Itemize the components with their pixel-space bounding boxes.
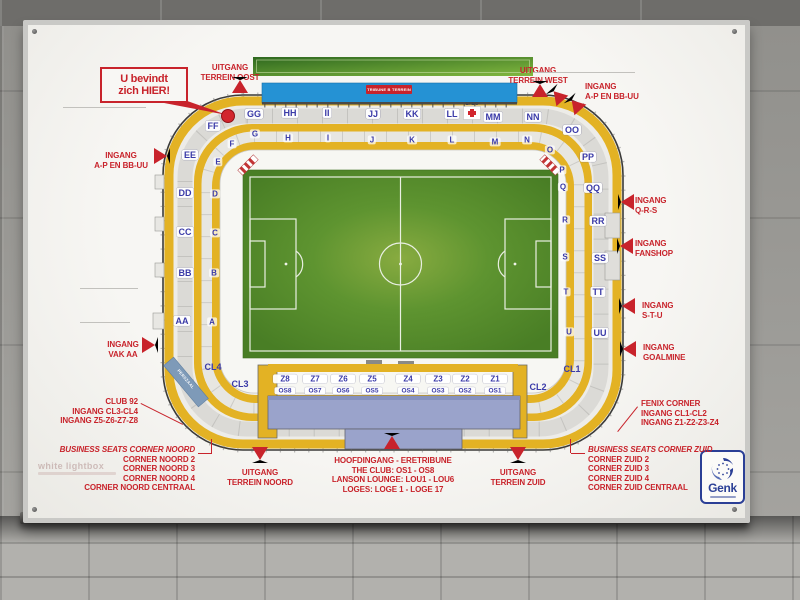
label-ingang-s-t-u: INGANGS-T-U: [642, 301, 673, 320]
press-room-label: PERSZAAL: [176, 368, 195, 390]
label-ingang-a-p-en-bb-uu-right: INGANGA-P EN BB-UU: [585, 82, 639, 101]
label-uitgang-terrein-west-line1: UITGANG: [508, 66, 567, 76]
label-business-seats-corner-zuid-line1: BUSINESS SEATS CORNER ZUID: [588, 445, 712, 455]
leader-line-2: [80, 288, 138, 289]
section-badge-s: S: [560, 252, 569, 261]
label-fenix-corner: FENIX CORNERINGANG CL1-CL2INGANG Z1-Z2-Z…: [641, 399, 719, 428]
section-badge-jj: JJ: [366, 109, 380, 119]
section-badge-z1: Z1: [483, 374, 507, 383]
label-ingang-goalmine-line2: GOALMINE: [643, 353, 685, 363]
label-ingang-s-t-u-line1: INGANG: [642, 301, 673, 311]
label-ingang-vak-aa-line2: VAK AA: [107, 350, 138, 360]
labels-overlay: U bevindt zich HIER! TRIBUNE B TERREIN E…: [28, 25, 745, 518]
section-badge-c: C: [210, 228, 220, 237]
section-badge-k: K: [407, 135, 417, 144]
direction-arrow-up-11: [384, 433, 400, 449]
label-uitgang-terrein-zuid-line1: UITGANG: [491, 468, 546, 478]
section-badge-e: E: [213, 157, 222, 166]
section-badge-z4: Z4: [396, 374, 420, 383]
label-club-92-line2: INGANG CL3-CL4: [60, 407, 138, 417]
label-ingang-a-p-en-bb-uu-left: INGANGA-P EN BB-UU: [94, 151, 148, 170]
direction-arrow-right-5: [142, 337, 158, 353]
section-badge-qq: QQ: [584, 183, 602, 193]
section-badge-ee: EE: [182, 150, 198, 160]
label-club-92: CLUB 92INGANG CL3-CL4INGANG Z5-Z6-Z7-Z8: [60, 397, 138, 426]
label-hoofdingang-eretribune-line2: THE CLUB: OS1 - OS8: [332, 466, 454, 476]
section-badge-l: L: [448, 135, 457, 144]
label-ingang-s-t-u-line2: S-T-U: [642, 311, 673, 321]
label-hoofdingang-eretribune-line3: LANSON LOUNGE: LOU1 - LOU6: [332, 475, 454, 485]
section-badge-d: D: [210, 189, 220, 198]
section-badge-rr: RR: [590, 216, 607, 226]
label-uitgang-terrein-oost-line2: TERREIN OOST: [201, 73, 260, 83]
section-badge-pp: PP: [580, 152, 596, 162]
section-badge-a: A: [207, 317, 217, 326]
direction-arrow-left-9: [620, 341, 636, 357]
you-are-here-callout: U bevindt zich HIER!: [100, 67, 188, 103]
label-ingang-fanshop-line1: INGANG: [635, 239, 673, 249]
section-badge-t: T: [562, 287, 571, 296]
leader-line-6: [198, 453, 212, 454]
section-badge-uu: UU: [592, 328, 609, 338]
label-business-seats-corner-zuid: BUSINESS SEATS CORNER ZUIDCORNER ZUID 2C…: [588, 445, 712, 493]
direction-arrow-left-8: [619, 298, 635, 314]
label-business-seats-corner-noord-line3: CORNER NOORD 3: [60, 464, 195, 474]
section-badge-h: H: [283, 133, 293, 142]
section-badge-n: N: [522, 135, 532, 144]
leader-line-1: [533, 72, 635, 73]
section-badge-cc: CC: [177, 227, 194, 237]
section-badge-z5: Z5: [360, 374, 384, 383]
section-badge-cl4: CL4: [202, 362, 223, 372]
label-uitgang-terrein-noord-line1: UITGANG: [227, 468, 293, 478]
section-badge-ss: SS: [592, 253, 608, 263]
label-ingang-fanshop: INGANGFANSHOP: [635, 239, 673, 258]
label-club-92-line1: CLUB 92: [60, 397, 138, 407]
leader-line-7: [211, 439, 212, 453]
section-badge-mm: MM: [484, 112, 503, 122]
section-badge-oo: OO: [563, 125, 581, 135]
label-ingang-goalmine: INGANGGOALMINE: [643, 343, 685, 362]
label-ingang-a-p-en-bb-uu-left-line2: A-P EN BB-UU: [94, 161, 148, 171]
sign-face: U bevindt zich HIER! TRIBUNE B TERREIN E…: [28, 25, 745, 518]
label-fenix-corner-line1: FENIX CORNER: [641, 399, 719, 409]
stadium-map-sign: U bevindt zich HIER! TRIBUNE B TERREIN E…: [23, 20, 750, 523]
section-badge-j: J: [368, 135, 376, 144]
section-badge-os5: OS5: [362, 387, 383, 394]
label-ingang-q-r-s: INGANGQ-R-S: [635, 196, 666, 215]
label-uitgang-terrein-zuid: UITGANGTERREIN ZUID: [491, 468, 546, 487]
ehbo-label: EHBO: [465, 101, 478, 106]
label-business-seats-corner-zuid-line2: CORNER ZUID 2: [588, 455, 712, 465]
label-ingang-fanshop-line2: FANSHOP: [635, 249, 673, 259]
section-badge-g: G: [250, 129, 260, 138]
pavement: [0, 516, 800, 600]
label-hoofdingang-eretribune: HOOFDINGANG - ERETRIBUNETHE CLUB: OS1 - …: [332, 456, 454, 494]
section-badge-ll: LL: [445, 109, 460, 119]
section-badge-z8: Z8: [273, 374, 297, 383]
section-badge-p: P: [557, 165, 566, 174]
section-badge-os3: OS3: [428, 387, 449, 394]
label-business-seats-corner-zuid-line4: CORNER ZUID 4: [588, 474, 712, 484]
label-hoofdingang-eretribune-line1: HOOFDINGANG - ERETRIBUNE: [332, 456, 454, 466]
section-badge-z7: Z7: [303, 374, 327, 383]
frame-screw: [732, 507, 737, 512]
section-badge-os2: OS2: [455, 387, 476, 394]
leader-line-0: [63, 107, 146, 108]
section-badge-f: F: [228, 139, 237, 148]
section-badge-cl3: CL3: [229, 379, 250, 389]
section-badge-z6: Z6: [331, 374, 355, 383]
direction-arrow-down-12: [510, 447, 526, 463]
label-uitgang-terrein-noord-line2: TERREIN NOORD: [227, 478, 293, 488]
section-badge-hh: HH: [282, 108, 299, 118]
section-badge-os1: OS1: [485, 387, 506, 394]
section-badge-cl1: CL1: [561, 364, 582, 374]
section-badge-aa: AA: [174, 316, 191, 326]
section-badge-u: U: [564, 327, 574, 336]
section-badge-gg: GG: [245, 109, 263, 119]
section-badge-q: Q: [558, 182, 568, 191]
label-uitgang-terrein-oost-line1: UITGANG: [201, 63, 260, 73]
section-badge-kk: KK: [404, 109, 421, 119]
label-business-seats-corner-noord: BUSINESS SEATS CORNER NOORDCORNER NOORD …: [60, 445, 195, 493]
label-business-seats-corner-noord-line1: BUSINESS SEATS CORNER NOORD: [60, 445, 195, 455]
section-badge-os4: OS4: [398, 387, 419, 394]
label-ingang-a-p-en-bb-uu-right-line1: INGANG: [585, 82, 639, 92]
section-badge-i: I: [325, 133, 331, 142]
label-ingang-q-r-s-line1: INGANG: [635, 196, 666, 206]
direction-arrow-right-4: [154, 148, 170, 164]
leader-line-9: [570, 439, 571, 453]
label-ingang-a-p-en-bb-uu-left-line1: INGANG: [94, 151, 148, 161]
direction-arrow-up-0: [232, 77, 248, 93]
leader-line-3: [80, 322, 130, 323]
label-club-92-line3: INGANG Z5-Z6-Z7-Z8: [60, 416, 138, 426]
label-business-seats-corner-noord-line2: CORNER NOORD 2: [60, 455, 195, 465]
section-badge-ii: II: [322, 108, 331, 118]
genk-logo-text: Genk: [708, 483, 737, 494]
label-business-seats-corner-zuid-line3: CORNER ZUID 3: [588, 464, 712, 474]
section-badge-cl2: CL2: [527, 382, 548, 392]
label-uitgang-terrein-oost: UITGANGTERREIN OOST: [201, 63, 260, 82]
label-ingang-vak-aa-line1: INGANG: [107, 340, 138, 350]
genk-logo-subtext: [710, 496, 736, 498]
leader-line-4: [140, 403, 183, 425]
section-badge-os8: OS8: [275, 387, 296, 394]
frame-screw: [32, 29, 37, 34]
section-badge-bb: BB: [177, 268, 194, 278]
you-are-here-line1: U bevindt: [120, 73, 167, 85]
label-ingang-q-r-s-line2: Q-R-S: [635, 206, 666, 216]
label-uitgang-terrein-noord: UITGANGTERREIN NOORD: [227, 468, 293, 487]
section-badge-os7: OS7: [305, 387, 326, 394]
section-badge-o: O: [545, 145, 555, 154]
leader-line-5: [617, 406, 638, 432]
genk-logo-swirl: [709, 455, 737, 483]
label-fenix-corner-line3: INGANG Z1-Z2-Z3-Z4: [641, 418, 719, 428]
section-badge-z3: Z3: [426, 374, 450, 383]
photo-of-stadium-sign: U bevindt zich HIER! TRIBUNE B TERREIN E…: [0, 0, 800, 600]
tribune-badge: TRIBUNE B TERREIN: [366, 85, 412, 94]
section-badge-m: M: [490, 137, 501, 146]
label-ingang-goalmine-line1: INGANG: [643, 343, 685, 353]
section-badge-tt: TT: [591, 287, 606, 297]
label-business-seats-corner-noord-line5: CORNER NOORD CENTRAAL: [60, 483, 195, 493]
direction-arrow-down-10: [252, 447, 268, 463]
section-badge-r: R: [560, 215, 570, 224]
frame-screw: [732, 29, 737, 34]
label-business-seats-corner-noord-line4: CORNER NOORD 4: [60, 474, 195, 484]
label-ingang-vak-aa: INGANGVAK AA: [107, 340, 138, 359]
label-fenix-corner-line2: INGANG CL1-CL2: [641, 409, 719, 419]
label-hoofdingang-eretribune-line4: LOGES: LOGE 1 - LOGE 17: [332, 485, 454, 495]
section-badge-ff: FF: [206, 121, 221, 131]
label-uitgang-terrein-zuid-line2: TERREIN ZUID: [491, 478, 546, 488]
frame-screw: [32, 507, 37, 512]
label-business-seats-corner-zuid-line5: CORNER ZUID CENTRAAL: [588, 483, 712, 493]
label-ingang-a-p-en-bb-uu-right-line2: A-P EN BB-UU: [585, 92, 639, 102]
direction-arrow-left-6: [618, 194, 634, 210]
section-badge-os6: OS6: [333, 387, 354, 394]
section-badge-dd: DD: [177, 188, 194, 198]
leader-line-8: [571, 453, 585, 454]
direction-arrow-left-7: [617, 238, 633, 254]
you-are-here-line2: zich HIER!: [118, 85, 169, 97]
section-badge-b: B: [209, 268, 219, 277]
section-badge-z2: Z2: [453, 374, 477, 383]
section-badge-nn: NN: [525, 112, 542, 122]
